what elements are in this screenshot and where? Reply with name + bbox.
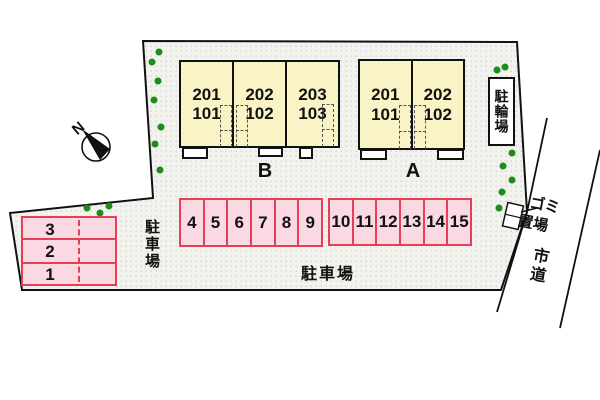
parking-space-5: 5 [203, 200, 227, 245]
parking-space-6: 6 [226, 200, 250, 245]
unit-number: 201 [192, 85, 220, 104]
unit-number: 202 [424, 85, 452, 104]
building-a-label: A [398, 160, 428, 183]
stairs-marker [399, 105, 411, 149]
parking-space-2: 2 [39, 241, 61, 262]
parking-space-3: 3 [39, 219, 61, 240]
parking-space-13: 13 [399, 200, 423, 244]
unit-number: 203 [298, 85, 326, 104]
parking-space-7: 7 [250, 200, 274, 245]
building-b: 201 101 202 102 203 103 [179, 60, 340, 148]
unit-number: 101 [371, 105, 399, 124]
unit-number: 101 [192, 104, 220, 123]
site-plan: N 201 101 202 102 [0, 0, 600, 400]
stairs-marker [414, 105, 426, 149]
building-a: 201 101 202 102 [358, 59, 465, 150]
unit-number: 102 [245, 104, 273, 123]
stairs-marker [220, 105, 232, 147]
parking-row-4-9: 4 5 6 7 8 9 [179, 198, 323, 247]
parking-space-12: 12 [375, 200, 399, 244]
unit-number: 201 [371, 85, 399, 104]
entrance-porch [437, 149, 464, 160]
compass-icon: N [69, 119, 110, 161]
bicycle-parking-box: 駐輪場 [488, 77, 515, 146]
entrance-porch [299, 147, 313, 159]
parking-space-1: 1 [39, 264, 61, 285]
parking-row-divider [23, 262, 115, 264]
unit-number: 202 [245, 85, 273, 104]
entrance-porch [182, 147, 208, 159]
entrance-porch [360, 149, 387, 160]
parking-row-divider [23, 238, 115, 240]
stairs-marker [236, 105, 248, 147]
parking-space-8: 8 [274, 200, 298, 245]
parking-space-10: 10 [330, 200, 352, 244]
parking-dashed-line [78, 220, 80, 282]
bicycle-parking-label: 駐輪場 [492, 89, 512, 134]
stairs-marker [322, 104, 334, 147]
parking-area-label-bottom: 駐車場 [301, 260, 355, 284]
parking-space-15: 15 [446, 200, 470, 244]
parking-space-11: 11 [352, 200, 376, 244]
parking-space-9: 9 [297, 200, 321, 245]
road-right-edge [560, 150, 600, 328]
building-b-label: B [250, 160, 280, 183]
parking-space-14: 14 [423, 200, 447, 244]
parking-area-label-left: 駐車場 [141, 219, 162, 281]
unit-number: 102 [424, 105, 452, 124]
entrance-porch [258, 147, 283, 157]
parking-row-10-15: 10 11 12 13 14 15 [328, 198, 472, 246]
compass-north-label: N [69, 119, 88, 139]
parking-space-4: 4 [181, 200, 203, 245]
parking-block-left: 3 2 1 [21, 216, 117, 286]
